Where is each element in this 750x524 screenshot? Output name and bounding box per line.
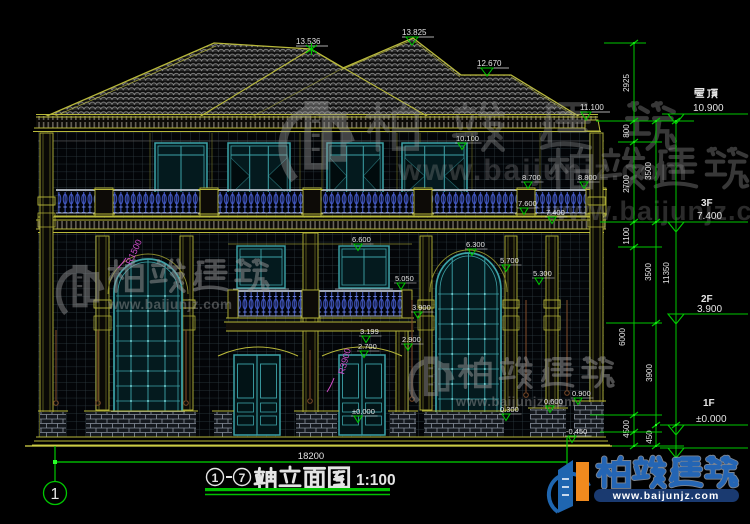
svg-text:7.400: 7.400 [546,208,565,217]
svg-text:8.800: 8.800 [578,173,597,182]
svg-text:18200: 18200 [298,451,324,462]
svg-text:6000: 6000 [618,328,627,346]
svg-text:7.400: 7.400 [697,211,722,222]
svg-text:1100: 1100 [622,227,631,245]
svg-text:-0.450: -0.450 [566,427,587,436]
svg-text:1: 1 [212,471,219,485]
svg-text:2.700: 2.700 [358,342,377,351]
svg-text:3.900: 3.900 [697,304,722,315]
svg-text:2925: 2925 [622,74,631,92]
svg-text:www.baijunjz.com: www.baijunjz.com [612,490,720,502]
svg-text:800: 800 [622,124,631,138]
svg-text:±0.000: ±0.000 [352,407,375,416]
svg-text:11.100: 11.100 [580,103,604,112]
svg-text:5.050: 5.050 [395,274,414,283]
svg-text:±0.000: ±0.000 [696,414,727,425]
svg-text:7: 7 [239,471,246,485]
svg-text:3F: 3F [701,198,713,209]
svg-text:1F: 1F [703,398,715,409]
svg-text:3500: 3500 [644,162,653,180]
svg-text:4500: 4500 [622,420,631,438]
svg-text:7.600: 7.600 [518,199,537,208]
svg-text:2700: 2700 [622,175,631,193]
svg-text:3.900: 3.900 [412,303,431,312]
svg-text:6.300: 6.300 [466,240,485,249]
svg-text:0.900: 0.900 [572,389,591,398]
svg-text:10.100: 10.100 [456,134,479,143]
svg-text:11350: 11350 [662,262,671,284]
svg-text:0.300: 0.300 [500,405,519,414]
svg-text:8.700: 8.700 [522,173,541,182]
svg-text:5.700: 5.700 [500,256,519,265]
svg-text:12.670: 12.670 [477,59,502,68]
svg-text:3.199: 3.199 [360,327,379,336]
svg-text:1: 1 [51,486,60,503]
svg-text:www.baijunjz.com: www.baijunjz.com [107,297,233,312]
svg-text:13.825: 13.825 [402,28,427,37]
svg-text:3500: 3500 [644,263,653,281]
svg-text:5.300: 5.300 [533,269,552,278]
svg-text:1:100: 1:100 [356,472,396,489]
svg-text:10.900: 10.900 [693,103,724,114]
svg-text:3900: 3900 [645,364,654,382]
svg-text:13.536: 13.536 [296,37,321,46]
svg-text:6.600: 6.600 [352,235,371,244]
svg-text:0.600: 0.600 [544,397,563,406]
svg-text:2.900: 2.900 [402,335,421,344]
